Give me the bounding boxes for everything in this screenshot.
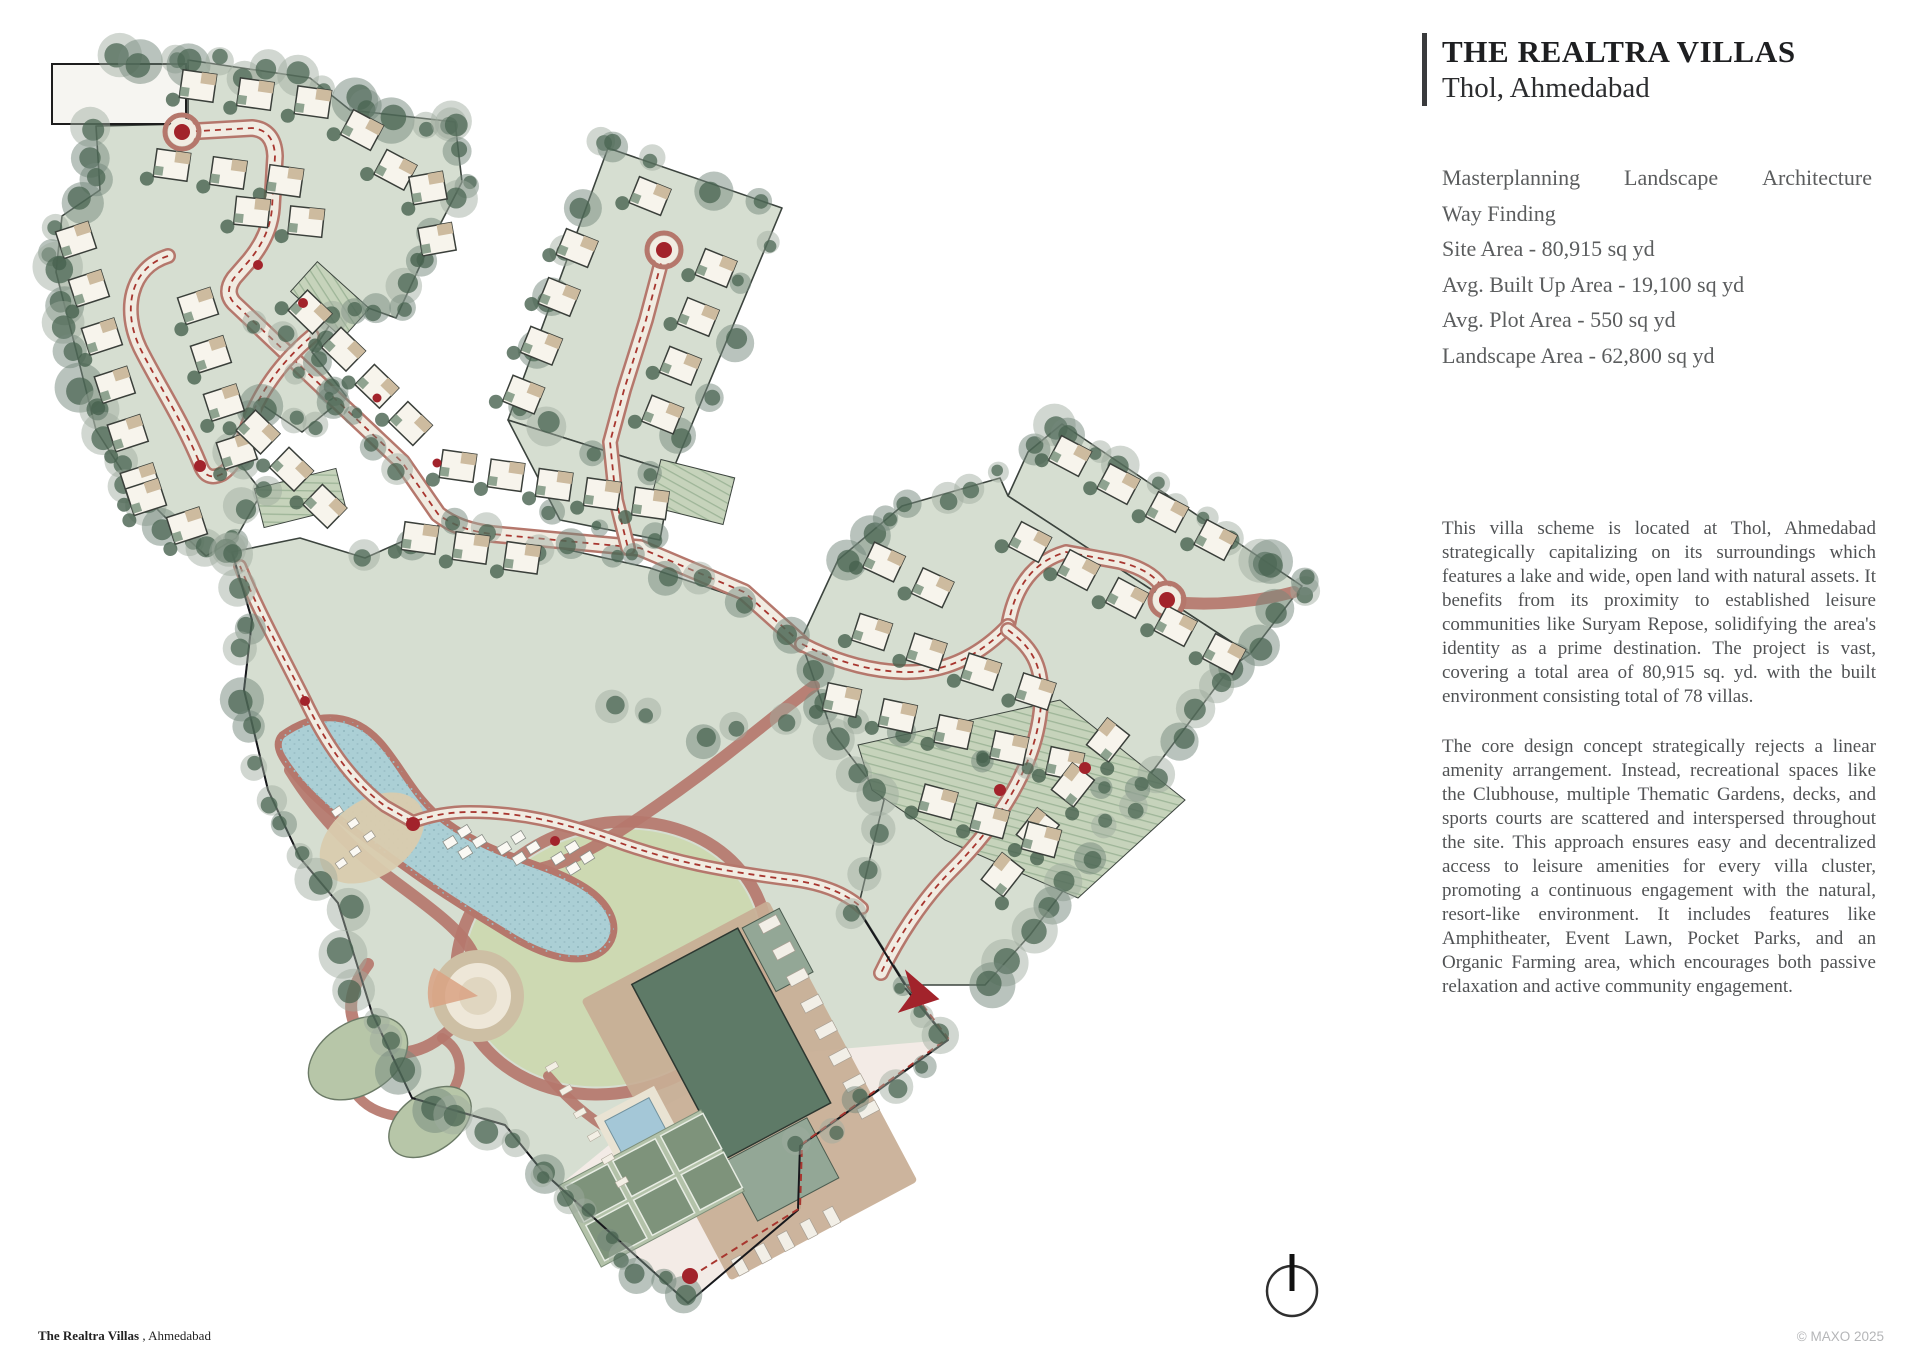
red-node-marker xyxy=(656,242,672,258)
red-node-marker xyxy=(300,696,310,706)
villa-footprint xyxy=(473,457,525,501)
scope-word: Landscape xyxy=(1624,160,1718,196)
red-node-marker xyxy=(1159,592,1175,608)
red-node-marker xyxy=(253,260,263,270)
red-node-marker xyxy=(994,784,1006,796)
spec-plot-area: Avg. Plot Area - 550 sq yd xyxy=(1442,302,1872,338)
spec-site-area: Site Area - 80,915 sq yd xyxy=(1442,231,1872,267)
scope-word: Architecture xyxy=(1762,160,1872,196)
scope-word: Masterplanning xyxy=(1442,160,1580,196)
copyright: © MAXO 2025 xyxy=(1797,1329,1884,1344)
spec-built-up-area: Avg. Built Up Area - 19,100 sq yd xyxy=(1442,267,1872,303)
description: This villa scheme is located at Thol, Ah… xyxy=(1442,517,1876,999)
red-node-marker xyxy=(194,460,206,472)
red-node-marker xyxy=(406,817,420,831)
red-node-marker xyxy=(550,836,560,846)
title-block: THE REALTRA VILLAS Thol, Ahmedabad xyxy=(1422,33,1796,106)
spec-landscape-area: Landscape Area - 62,800 sq yd xyxy=(1442,338,1872,374)
red-node-marker xyxy=(174,124,190,140)
villa-footprint xyxy=(425,448,477,492)
north-arrow-icon xyxy=(1267,1254,1317,1316)
footer-caption: The Realtra Villas , Ahmedabad xyxy=(38,1328,211,1344)
page-title: THE REALTRA VILLAS xyxy=(1442,33,1796,70)
red-node-marker xyxy=(373,394,382,403)
footer-location: , Ahmedabad xyxy=(139,1328,211,1343)
scope-line: Masterplanning Landscape Architecture xyxy=(1442,160,1872,196)
red-node-marker xyxy=(298,298,308,308)
red-node-marker xyxy=(1079,762,1091,774)
red-node-marker xyxy=(433,459,442,468)
footer-project-name: The Realtra Villas xyxy=(38,1328,139,1343)
page-subtitle: Thol, Ahmedabad xyxy=(1442,70,1796,106)
project-details: Masterplanning Landscape Architecture Wa… xyxy=(1442,160,1872,373)
description-paragraph-2: The core design concept strategically re… xyxy=(1442,735,1876,999)
description-paragraph-1: This villa scheme is located at Thol, Ah… xyxy=(1442,517,1876,709)
red-node-marker xyxy=(682,1268,698,1284)
scope-line-2: Way Finding xyxy=(1442,196,1872,232)
